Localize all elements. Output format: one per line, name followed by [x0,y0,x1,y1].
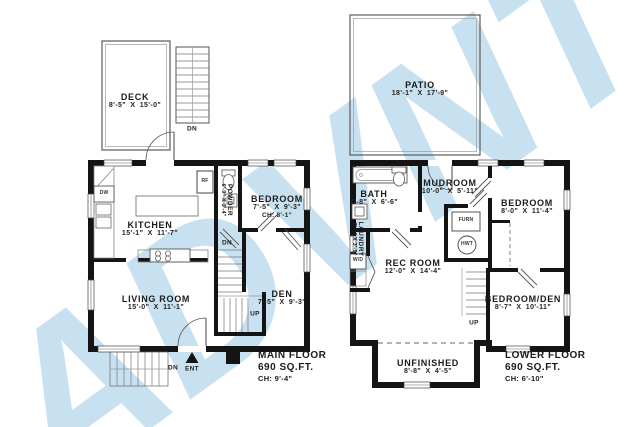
living-room-name: LIVING ROOM [122,294,190,304]
rec-room-label: REC ROOM 12'-0" X 14'-4" [385,258,442,276]
mudroom-name: MUDROOM [422,178,478,188]
deck-dn-label: DN [187,125,197,132]
mudroom-label: MUDROOM 10'-0" X 5'-11" [422,178,478,196]
lower-bedroom-dims: 8'-0" X 11'-4" [501,208,553,216]
rec-room-name: REC ROOM [385,258,442,268]
rf-label: RF [201,179,208,185]
living-room-label: LIVING ROOM 15'-0" X 11'-1" [122,294,190,312]
main-stairs-dn-label: DN [222,239,232,246]
laundry-label: LAUNDRY 7'-9" X 3'-9" [350,221,364,256]
lower-floor-title-block: LOWER FLOOR 690 SQ.FT. CH: 6'-10" [505,350,586,383]
wd-label: W/D [353,258,363,264]
hwt-label: HWT [461,242,473,248]
unfinished-dims: 8'-8" X 4'-5" [397,368,459,376]
lower-stairs-up-label: UP [469,319,479,326]
floorplan-canvas: ADVNT [0,0,640,427]
main-floor-area: 690 SQ.FT. [258,362,326,373]
unfinished-name: UNFINISHED [397,358,459,368]
deck-name: DECK [109,92,161,102]
lower-floor-ceiling-height: CH: 6'-10" [505,374,586,383]
laundry-name: LAUNDRY [356,221,363,256]
den-name: DEN [258,289,306,299]
main-stairs-up-label: UP [250,310,260,317]
deck-dims: 8'-5" X 15'-0" [109,102,161,110]
bath-name: BATH [350,189,398,199]
bedroom-den-label: BEDROOM/DEN 8'-7" X 10'-11" [485,294,561,312]
main-floor-ceiling-height: CH: 9'-4" [258,374,326,383]
den-label: DEN 7'-5" X 9'-3" [258,289,306,307]
lower-bedroom-label: BEDROOM 8'-0" X 11'-4" [501,198,553,216]
main-bedroom-name: BEDROOM [251,194,303,204]
powder-dims: 6'-9" X 3'-4" [219,183,225,216]
main-floor-title: MAIN FLOOR [258,350,326,361]
main-bedroom-ch: CH: 8'-1" [251,212,303,219]
lower-floor-title: LOWER FLOOR [505,350,586,361]
mudroom-dims: 10'-0" X 5'-11" [422,188,478,196]
rec-room-dims: 12'-0" X 14'-4" [385,268,442,276]
kitchen-dims: 15'-1" X 11'-7" [122,230,178,238]
dw-label: DW [100,191,109,197]
kitchen-name: KITCHEN [122,220,178,230]
main-floor-title-block: MAIN FLOOR 690 SQ.FT. CH: 9'-4" [258,350,326,383]
deck-label: DECK 8'-5" X 15'-0" [109,92,161,110]
labels-layer: DECK 8'-5" X 15'-0" DN KITCHEN 15'-1" X … [0,0,640,427]
lower-bedroom-name: BEDROOM [501,198,553,208]
kitchen-label: KITCHEN 15'-1" X 11'-7" [122,220,178,238]
unfinished-label: UNFINISHED 8'-8" X 4'-5" [397,358,459,376]
furn-label: FURN [459,218,474,224]
entry-dn-label: DN [168,364,178,371]
living-room-dims: 15'-0" X 11'-1" [122,304,190,312]
laundry-dims: 7'-9" X 3'-9" [350,221,356,256]
patio-label: PATIO 18'-1" X 17'-9" [392,80,449,98]
main-bedroom-dims: 7'-5" X 9'-3" [251,204,303,212]
den-dims: 7'-5" X 9'-3" [258,299,306,307]
powder-label: POWDER 6'-9" X 3'-4" [219,183,233,216]
bedroom-den-dims: 8'-7" X 10'-11" [485,304,561,312]
ent-label: ENT [185,365,199,372]
bath-dims: 7'-8" X 6'-6" [350,199,398,207]
main-bedroom-label: BEDROOM 7'-5" X 9'-3" CH: 8'-1" [251,194,303,220]
lower-floor-area: 690 SQ.FT. [505,362,586,373]
patio-name: PATIO [392,80,449,90]
powder-name: POWDER [225,183,232,216]
bath-label: BATH 7'-8" X 6'-6" [350,189,398,207]
bedroom-den-name: BEDROOM/DEN [485,294,561,304]
patio-dims: 18'-1" X 17'-9" [392,90,449,98]
